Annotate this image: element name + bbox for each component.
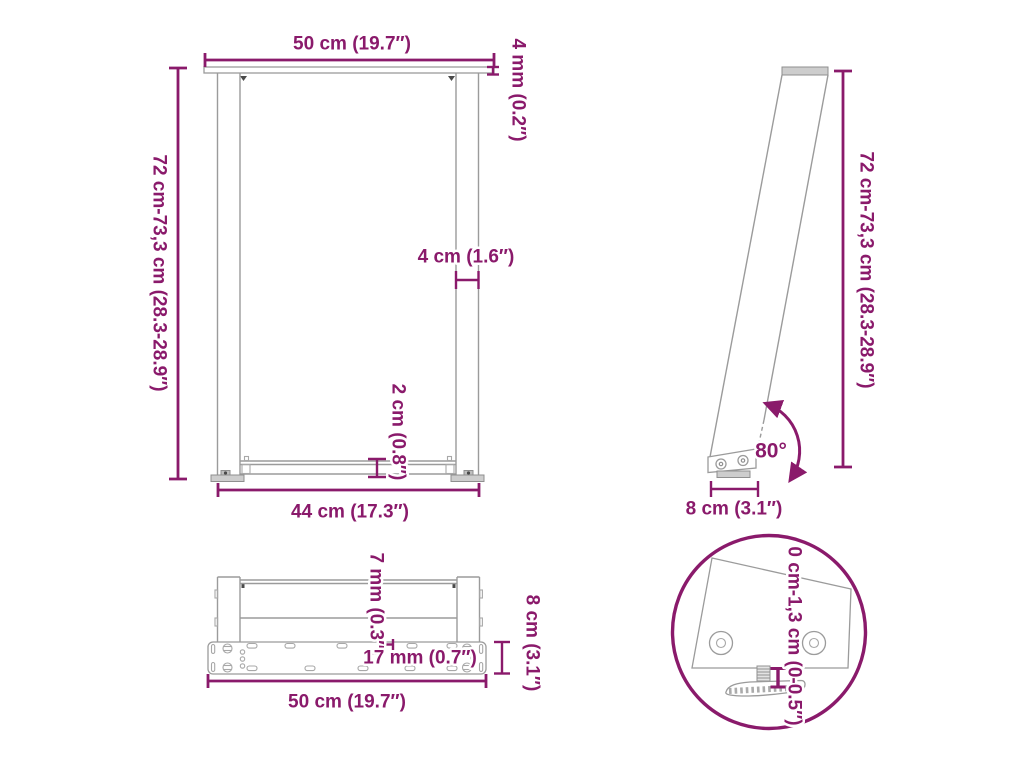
side-top-cap [782,67,828,75]
front-plate-screws [240,76,455,81]
base-dim-plate-depth [494,642,510,674]
base-leg-stubs [215,577,482,642]
side-label-foot-depth: 8 cm (3.1″) [686,499,783,520]
front-label-crossbar-height: 2 cm (0.8″) [388,384,409,481]
front-dim-height [169,68,187,479]
front-right-leg [456,73,479,476]
detail-view: 0 cm-1,3 cm (0-0.5″) [673,536,866,729]
side-view: 80° 72 cm-73,3 cm (28.3-28.9″) 8 cm (3.1… [686,67,877,520]
base-crossbar-lines [240,580,457,618]
base-view: 7 mm (0.3″) 17 mm (0.7″) 8 cm (3.1″) 50 … [208,552,543,712]
dimension-diagram: 50 cm (19.7″) 4 mm (0.2″) 72 cm-73,3 cm … [0,0,1024,768]
side-foot [708,449,756,478]
front-left-foot [211,471,244,482]
front-label-height: 72 cm-73,3 cm (28.3-28.9″) [149,154,170,391]
base-dim-plate-width [208,674,486,688]
front-dim-bottom-width [218,483,479,497]
front-crossbar [240,457,456,475]
side-label-height: 72 cm-73,3 cm (28.3-28.9″) [856,151,877,388]
detail-label-adjust-range: 0 cm-1,3 cm (0-0.5″) [784,546,805,725]
front-label-top-width: 50 cm (19.7″) [293,34,411,55]
side-dim-height [834,71,852,467]
front-dim-top-width [205,53,494,67]
diagram-svg: 50 cm (19.7″) 4 mm (0.2″) 72 cm-73,3 cm … [0,0,1024,768]
front-label-leg-width: 4 cm (1.6″) [418,247,515,268]
base-label-plate-width: 50 cm (19.7″) [288,692,406,713]
front-label-plate-thickness: 4 mm (0.2″) [508,38,529,141]
side-leg [710,75,828,457]
side-dim-foot-depth [711,481,758,497]
side-label-angle: 80° [755,440,787,463]
front-left-leg [218,73,241,476]
front-dim-leg-width [456,271,479,289]
front-top-plate [204,67,494,73]
front-view: 50 cm (19.7″) 4 mm (0.2″) 72 cm-73,3 cm … [149,34,529,523]
base-label-plate-depth: 8 cm (3.1″) [522,595,543,692]
base-label-hole-spacing: 17 mm (0.7″) [363,648,477,669]
front-label-bottom-width: 44 cm (17.3″) [291,502,409,523]
base-label-slot-width: 7 mm (0.3″) [366,552,387,655]
